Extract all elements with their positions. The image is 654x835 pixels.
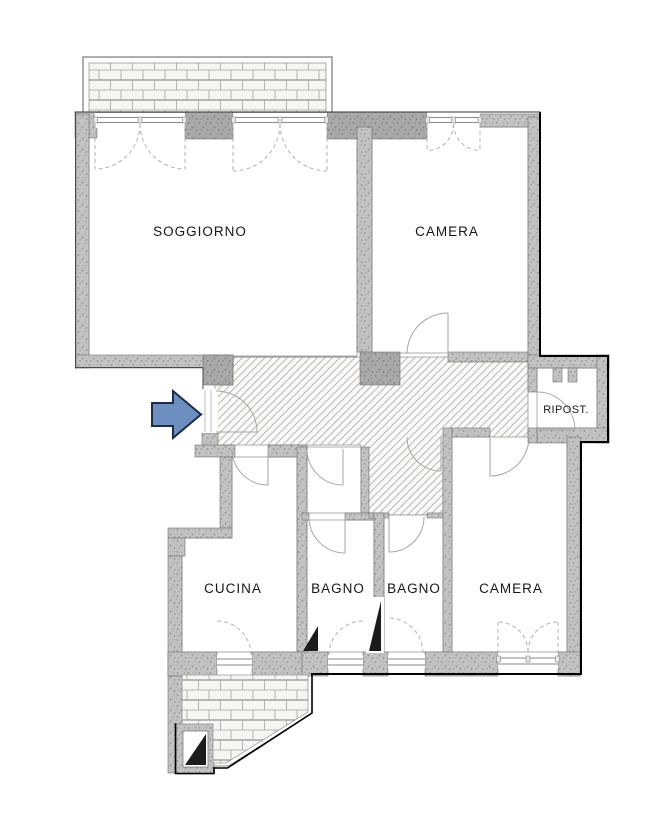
top-balcony: [83, 57, 332, 115]
room-label-soggiorno: SOGGIORNO: [153, 224, 247, 239]
camera-top-floor: [372, 127, 528, 353]
room-label-ripostiglio: RIPOST.: [543, 404, 589, 416]
ripostiglio-floor: [537, 368, 597, 428]
floor-plan: SOGGIORNO CAMERA RIPOST. CUCINA BAGNO BA…: [0, 0, 654, 835]
entrance-arrow: [152, 391, 201, 438]
room-label-bagno-2: BAGNO: [387, 581, 441, 596]
floor-plan-drawing: SOGGIORNO CAMERA RIPOST. CUCINA BAGNO BA…: [0, 0, 654, 835]
cucina-floor: [182, 457, 297, 652]
room-label-bagno-1: BAGNO: [311, 581, 365, 596]
vestibule-floor: [307, 447, 361, 513]
room-label-cucina: CUCINA: [204, 581, 262, 596]
bottom-balcony: [182, 675, 312, 767]
room-label-camera-bottom: CAMERA: [479, 581, 543, 596]
camera-bottom-floor: [452, 437, 567, 652]
room-label-camera-top: CAMERA: [415, 224, 479, 239]
soggiorno-floor: [89, 127, 357, 356]
